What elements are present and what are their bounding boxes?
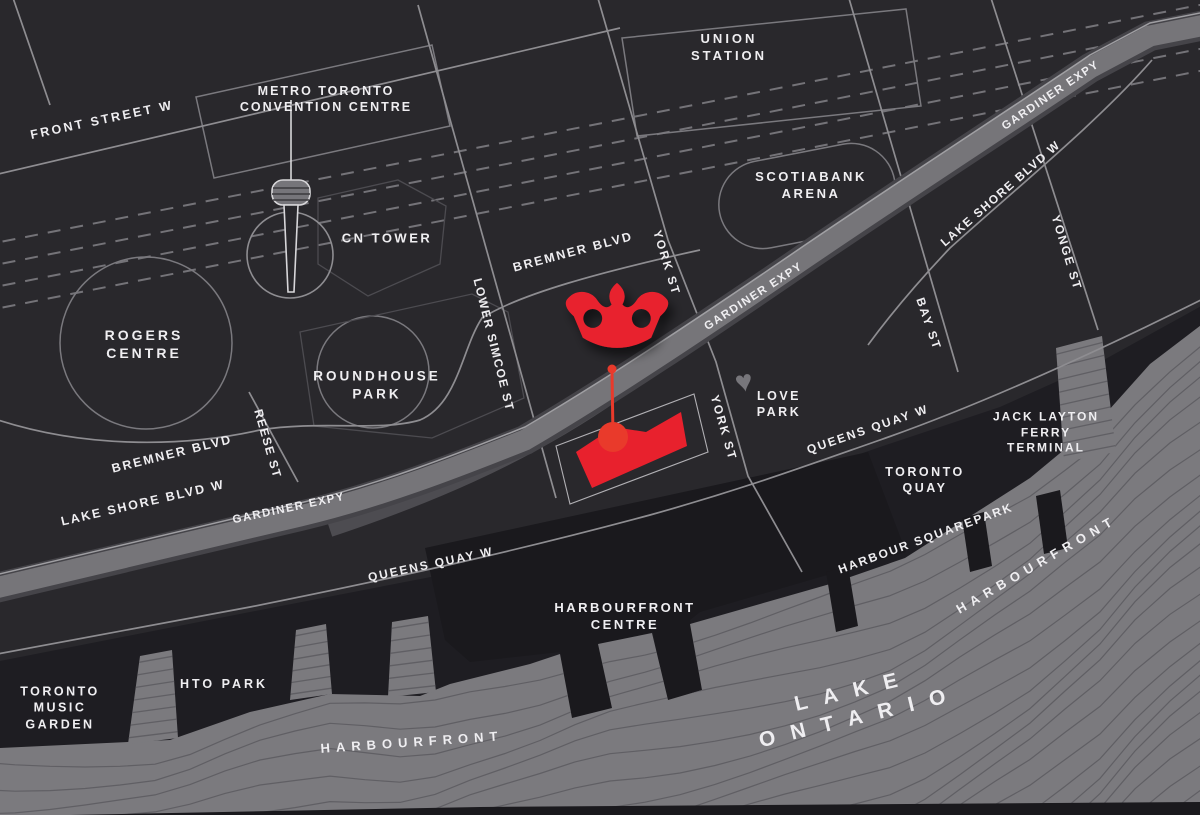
toronto-waterfront-map: FRONT STREET WMETRO TORONTO CONVENTION C… — [0, 0, 1200, 815]
location-marker-dot — [598, 422, 628, 452]
map-graphic — [0, 0, 1200, 815]
marker-top-dot — [608, 365, 617, 374]
